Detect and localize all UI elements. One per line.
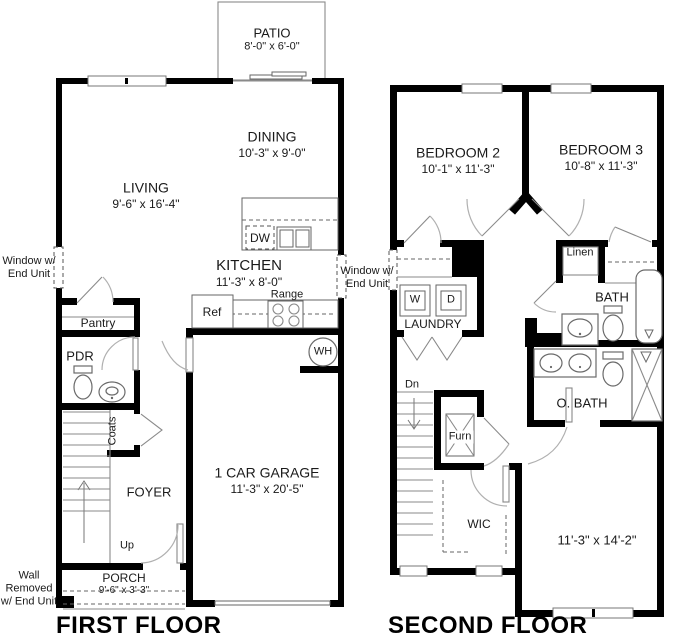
bedroom3-dims: 10'-8" x 11'-3": [565, 159, 638, 173]
bifold-door: [402, 337, 432, 360]
first-floor-plan: [54, 2, 346, 609]
porch-dims: 9'-6" x 3'-3": [99, 585, 149, 597]
wall-removed-note: Wall Removed w/ End Unit: [0, 570, 59, 609]
first-floor-windows: [54, 76, 346, 298]
pdr-label: PDR: [66, 348, 93, 363]
bath-label: BATH: [595, 289, 629, 304]
dining-dims: 10'-3" x 9'-0": [238, 146, 305, 160]
living-label: LIVING: [123, 180, 169, 197]
bath-toilet-icon: [603, 306, 623, 341]
stairs-down: [397, 392, 433, 535]
dryer-label: D: [447, 294, 455, 307]
dining-label: DINING: [248, 129, 297, 146]
shower-icon: [632, 349, 662, 421]
up-arrow-icon: [78, 481, 90, 543]
garage-door: [215, 601, 330, 605]
owner-room-dims: 11'-3" x 14'-2": [558, 532, 637, 547]
ref-label: Ref: [203, 305, 222, 319]
patio-dims: 8'-0" x 6'-0": [244, 41, 299, 54]
first-floor-title: FIRST FLOOR: [56, 612, 221, 640]
toilet-icon: [74, 366, 92, 399]
second-floor-title: SECOND FLOOR: [388, 612, 587, 640]
dw-label: DW: [250, 231, 270, 245]
wic-label: WIC: [467, 517, 490, 531]
coats-label: Coats: [107, 417, 120, 446]
owner-bath-label: O. BATH: [556, 395, 607, 410]
laundry-label: LAUNDRY: [404, 317, 461, 331]
living-dims: 9'-6" x 16'-4": [112, 197, 179, 211]
owner-toilet-icon: [603, 352, 623, 386]
linen-label: Linen: [567, 247, 594, 260]
double-vanity-icon: [534, 349, 596, 377]
kitchen-sink-icon: [277, 227, 311, 250]
bedroom2-label: BEDROOM 2: [416, 145, 500, 162]
powder-room-fixtures: [74, 366, 125, 402]
patio-label: PATIO: [253, 25, 290, 40]
foyer-label: FOYER: [127, 484, 172, 499]
range-label: Range: [271, 289, 303, 302]
pantry-label: Pantry: [81, 316, 116, 330]
bedroom2-dims: 10'-1" x 11'-3": [422, 162, 495, 176]
floorplan-page: PATIO 8'-0" x 6'-0" DINING 10'-3" x 9'-0…: [0, 0, 674, 640]
range-icon: [268, 301, 303, 328]
bifold-door: [432, 337, 462, 360]
garage-label: 1 CAR GARAGE: [214, 465, 319, 482]
bedroom3-label: BEDROOM 3: [559, 142, 643, 159]
washer-label: W: [410, 294, 420, 307]
stairs-up: [63, 410, 110, 563]
sink-icon: [99, 382, 125, 402]
window-end-unit-note-left: Window w/ End Unit: [2, 255, 56, 281]
porch-label: PORCH: [102, 571, 145, 585]
wh-label: WH: [314, 346, 332, 359]
furn-label: Furn: [447, 431, 474, 444]
kitchen-dims: 11'-3" x 8'-0": [216, 275, 282, 289]
window-end-unit-note-mid: Window w/ End Unit: [340, 265, 394, 291]
bath-sink-icon: [562, 314, 598, 345]
bath-fixtures: [562, 270, 662, 345]
bathtub-icon: [636, 270, 662, 343]
dn-label: Dn: [405, 379, 419, 392]
up-label: Up: [120, 540, 134, 553]
kitchen-label: KITCHEN: [216, 257, 282, 275]
garage-dims: 11'-3" x 20'-5": [231, 482, 304, 496]
